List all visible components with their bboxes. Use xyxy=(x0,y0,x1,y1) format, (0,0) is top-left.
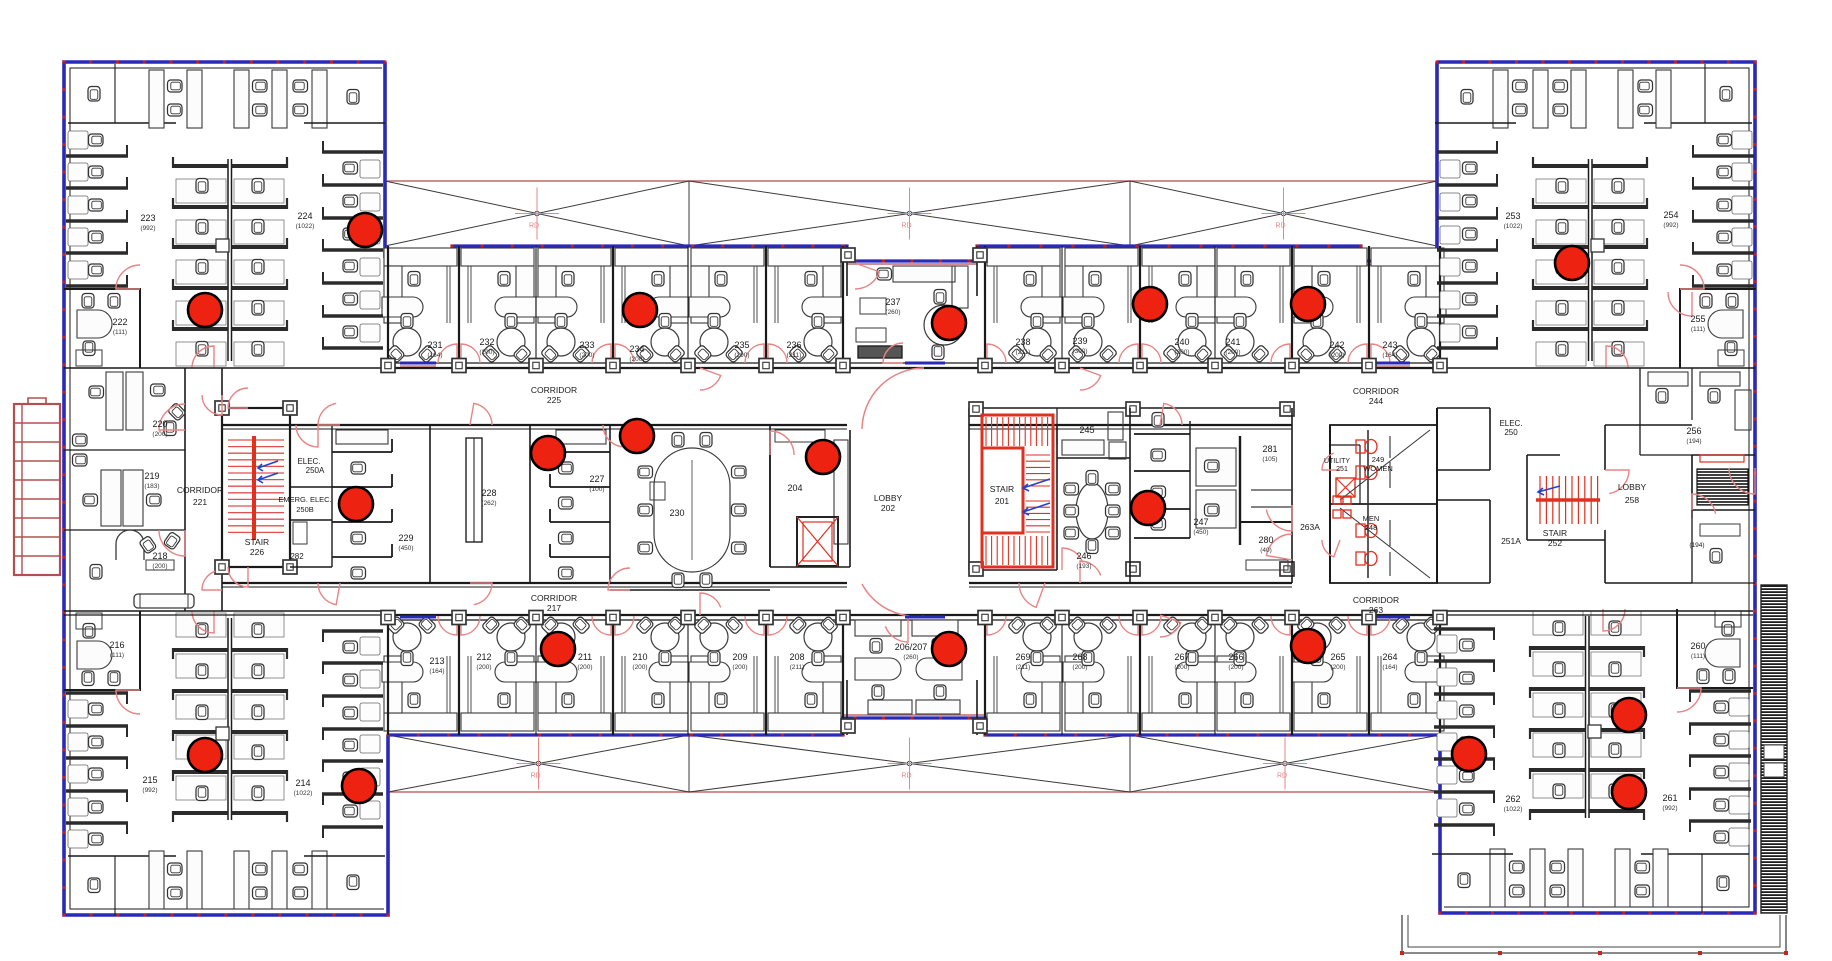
svg-text:253: 253 xyxy=(1505,211,1520,221)
svg-text:(200): (200) xyxy=(152,431,167,438)
svg-text:210: 210 xyxy=(632,652,647,662)
svg-text:266: 266 xyxy=(1228,652,1243,662)
svg-text:228: 228 xyxy=(481,488,496,498)
svg-text:UTILITY: UTILITY xyxy=(1324,458,1350,465)
svg-text:(200): (200) xyxy=(1330,664,1345,671)
svg-text:(200): (200) xyxy=(1228,664,1243,671)
svg-text:(211): (211) xyxy=(790,664,805,671)
svg-text:222: 222 xyxy=(112,317,127,327)
svg-text:217: 217 xyxy=(547,603,561,613)
svg-text:(260): (260) xyxy=(903,654,918,661)
svg-text:(200): (200) xyxy=(579,352,594,359)
svg-text:LOBBY: LOBBY xyxy=(1618,482,1647,492)
svg-text:212: 212 xyxy=(476,652,491,662)
svg-text:RD: RD xyxy=(1276,223,1286,230)
svg-text:MEN: MEN xyxy=(1363,514,1380,523)
svg-text:211: 211 xyxy=(578,652,592,662)
svg-text:232: 232 xyxy=(479,337,494,347)
svg-text:(992): (992) xyxy=(140,225,155,232)
svg-text:(200): (200) xyxy=(1072,664,1087,671)
svg-text:223: 223 xyxy=(140,213,155,223)
svg-text:269: 269 xyxy=(1015,652,1030,662)
svg-text:ELEC.: ELEC. xyxy=(297,457,320,466)
svg-text:208: 208 xyxy=(789,652,804,662)
svg-text:247: 247 xyxy=(1193,517,1208,527)
svg-text:255: 255 xyxy=(1690,314,1705,324)
svg-text:252: 252 xyxy=(1548,538,1562,548)
svg-text:245: 245 xyxy=(1079,425,1094,435)
svg-text:CORRIDOR: CORRIDOR xyxy=(177,485,223,495)
svg-text:216: 216 xyxy=(109,640,124,650)
svg-text:EMERG. ELEC.: EMERG. ELEC. xyxy=(278,495,331,504)
svg-text:WOMEN: WOMEN xyxy=(1363,464,1393,473)
svg-text:(300): (300) xyxy=(1072,348,1087,355)
svg-text:231: 231 xyxy=(427,340,442,350)
svg-text:CORRIDOR: CORRIDOR xyxy=(1353,595,1399,605)
svg-text:250B: 250B xyxy=(296,505,314,514)
svg-text:(200): (200) xyxy=(1174,664,1189,671)
svg-text:281: 281 xyxy=(1262,444,1277,454)
svg-text:(200): (200) xyxy=(1329,352,1344,359)
svg-text:(200): (200) xyxy=(476,664,491,671)
svg-text:262: 262 xyxy=(1505,794,1520,804)
svg-text:209: 209 xyxy=(732,652,747,662)
svg-text:246: 246 xyxy=(1076,551,1091,561)
svg-text:STAIR: STAIR xyxy=(1543,528,1567,538)
svg-text:267: 267 xyxy=(1174,652,1189,662)
svg-text:(211): (211) xyxy=(1016,349,1031,356)
svg-text:(164): (164) xyxy=(1382,664,1397,671)
svg-text:243: 243 xyxy=(1382,340,1397,350)
svg-text:RD: RD xyxy=(529,223,539,230)
svg-text:(164): (164) xyxy=(429,668,444,675)
svg-text:242: 242 xyxy=(1329,340,1344,350)
svg-text:(200): (200) xyxy=(152,563,167,570)
svg-text:268: 268 xyxy=(1072,652,1087,662)
svg-text:265: 265 xyxy=(1330,652,1345,662)
svg-text:238: 238 xyxy=(1015,337,1030,347)
svg-text:STAIR: STAIR xyxy=(990,484,1014,494)
svg-text:(111): (111) xyxy=(113,329,127,336)
svg-text:221: 221 xyxy=(193,497,207,507)
svg-text:STAIR: STAIR xyxy=(245,537,269,547)
svg-text:(111): (111) xyxy=(110,652,124,659)
svg-text:254: 254 xyxy=(1663,210,1678,220)
svg-text:206/207: 206/207 xyxy=(895,642,928,652)
svg-text:256: 256 xyxy=(1686,426,1701,436)
svg-text:RD: RD xyxy=(531,773,541,780)
svg-text:229: 229 xyxy=(398,533,413,543)
svg-text:(111): (111) xyxy=(1691,326,1705,333)
svg-text:(200): (200) xyxy=(732,664,747,671)
svg-text:249: 249 xyxy=(1372,455,1385,464)
svg-text:280: 280 xyxy=(1258,535,1273,545)
svg-text:(992): (992) xyxy=(1663,222,1678,229)
svg-text:235: 235 xyxy=(734,340,749,350)
svg-text:(193): (193) xyxy=(1076,563,1091,570)
svg-text:225: 225 xyxy=(547,395,561,405)
svg-text:236: 236 xyxy=(786,340,801,350)
svg-text:(450): (450) xyxy=(1193,529,1208,536)
svg-text:(100): (100) xyxy=(589,486,604,493)
svg-text:215: 215 xyxy=(142,775,157,785)
svg-text:248: 248 xyxy=(1365,523,1378,532)
svg-text:(200): (200) xyxy=(734,352,749,359)
svg-text:234: 234 xyxy=(629,344,644,354)
svg-text:241: 241 xyxy=(1225,337,1240,347)
svg-text:202: 202 xyxy=(881,503,895,513)
svg-text:220: 220 xyxy=(152,419,167,429)
svg-text:(200): (200) xyxy=(1225,349,1240,356)
svg-text:(164): (164) xyxy=(427,352,442,359)
svg-text:CORRIDOR: CORRIDOR xyxy=(1353,386,1399,396)
svg-text:219: 219 xyxy=(144,471,159,481)
svg-text:(1022): (1022) xyxy=(1504,806,1523,813)
svg-text:(194): (194) xyxy=(1689,542,1704,549)
svg-text:(200): (200) xyxy=(479,349,494,356)
svg-text:(105): (105) xyxy=(1262,456,1277,463)
svg-text:264: 264 xyxy=(1382,652,1397,662)
svg-text:201: 201 xyxy=(995,496,1009,506)
svg-text:(200): (200) xyxy=(629,356,644,363)
svg-text:(40): (40) xyxy=(1260,547,1272,554)
svg-text:(211): (211) xyxy=(787,352,802,359)
svg-text:(164): (164) xyxy=(1382,352,1397,359)
svg-text:(260): (260) xyxy=(885,309,900,316)
svg-text:(992): (992) xyxy=(142,787,157,794)
svg-text:260: 260 xyxy=(1690,641,1705,651)
svg-text:244: 244 xyxy=(1369,396,1383,406)
svg-text:237: 237 xyxy=(885,297,900,307)
svg-text:LOBBY: LOBBY xyxy=(874,493,903,503)
svg-text:(211): (211) xyxy=(1016,664,1031,671)
svg-text:251: 251 xyxy=(1336,466,1348,473)
svg-text:258: 258 xyxy=(1625,495,1639,505)
svg-text:224: 224 xyxy=(297,211,312,221)
svg-text:(1022): (1022) xyxy=(294,790,313,797)
svg-text:218: 218 xyxy=(152,551,167,561)
svg-text:(1022): (1022) xyxy=(296,223,315,230)
svg-text:ELEC.: ELEC. xyxy=(1499,419,1522,428)
svg-text:233: 233 xyxy=(579,340,594,350)
svg-text:(200): (200) xyxy=(1174,349,1189,356)
svg-text:250: 250 xyxy=(1504,428,1518,437)
svg-text:261: 261 xyxy=(1662,793,1677,803)
svg-text:RD: RD xyxy=(1277,773,1287,780)
svg-text:226: 226 xyxy=(250,547,264,557)
svg-text:240: 240 xyxy=(1174,337,1189,347)
svg-text:263A: 263A xyxy=(1300,522,1320,532)
svg-text:204: 204 xyxy=(787,483,802,493)
svg-text:239: 239 xyxy=(1072,336,1087,346)
svg-text:RD: RD xyxy=(902,773,912,780)
svg-text:214: 214 xyxy=(295,778,310,788)
svg-text:(200): (200) xyxy=(632,664,647,671)
svg-text:CORRIDOR: CORRIDOR xyxy=(531,385,577,395)
svg-text:282: 282 xyxy=(290,552,304,561)
svg-text:(200): (200) xyxy=(577,664,592,671)
svg-text:227: 227 xyxy=(589,474,604,484)
svg-text:(1022): (1022) xyxy=(1504,223,1523,230)
svg-text:CORRIDOR: CORRIDOR xyxy=(531,593,577,603)
svg-text:251A: 251A xyxy=(1501,536,1521,546)
svg-text:(183): (183) xyxy=(144,483,159,490)
svg-text:(111): (111) xyxy=(1691,653,1705,660)
svg-text:(450): (450) xyxy=(398,545,413,552)
svg-text:(262): (262) xyxy=(481,500,496,507)
svg-text:263: 263 xyxy=(1369,605,1383,615)
svg-text:(992): (992) xyxy=(1662,805,1677,812)
svg-text:250A: 250A xyxy=(306,466,325,475)
svg-text:RD: RD xyxy=(902,223,912,230)
svg-text:230: 230 xyxy=(669,508,684,518)
svg-text:213: 213 xyxy=(429,656,444,666)
svg-text:(194): (194) xyxy=(1686,438,1701,445)
